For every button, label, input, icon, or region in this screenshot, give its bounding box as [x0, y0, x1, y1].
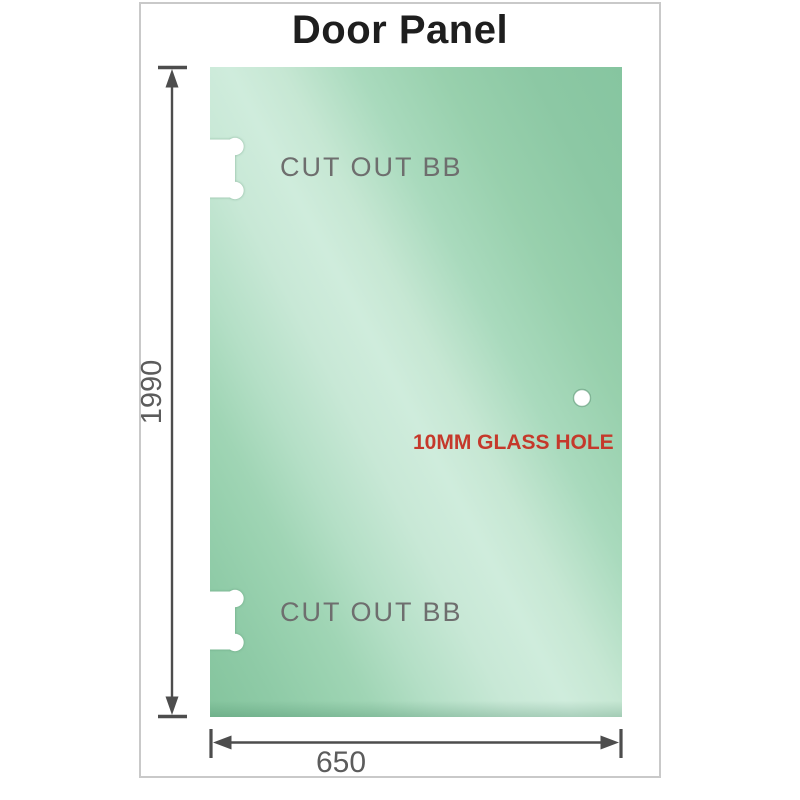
diagram-overlay	[0, 0, 800, 800]
height-dimension-label: 1990	[136, 332, 168, 452]
width-dimension-line	[211, 729, 621, 758]
width-dimension-label: 650	[281, 747, 401, 779]
hinge-cutout-top	[204, 138, 244, 199]
cutout-label-bottom: CUT OUT BB	[280, 597, 500, 627]
glass-hole	[574, 390, 591, 407]
hinge-cutout-bottom	[204, 590, 244, 651]
glass-hole-label: 10MM GLASS HOLE	[413, 431, 614, 455]
cutout-label-top: CUT OUT BB	[280, 152, 500, 182]
